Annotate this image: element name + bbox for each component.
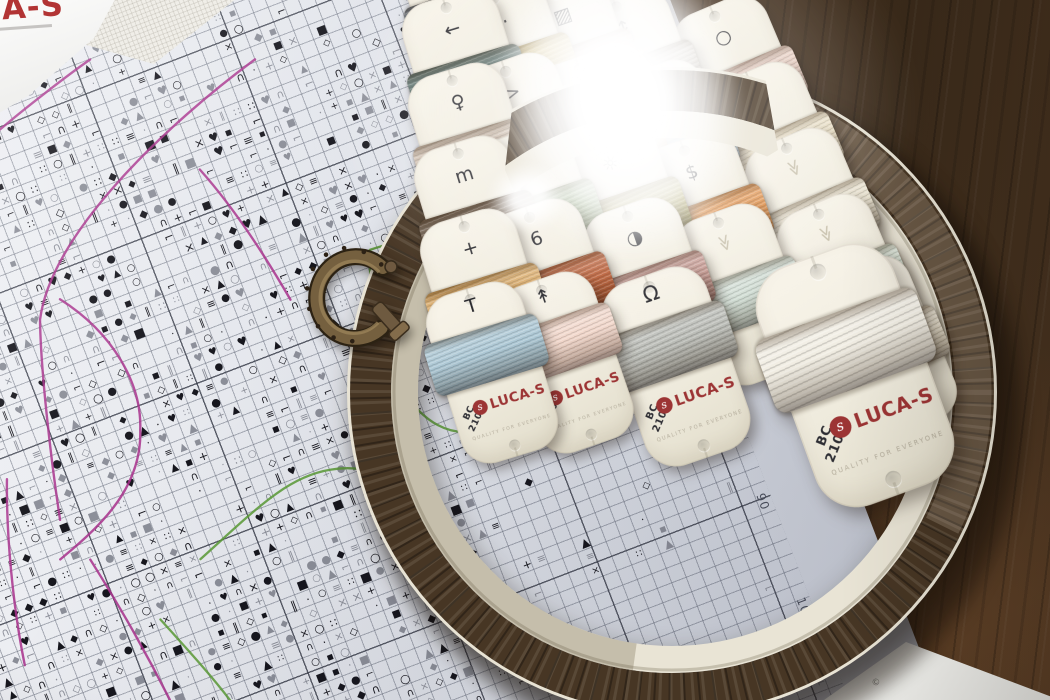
- charm-knob: [384, 260, 398, 274]
- brand-logo-icon: s: [654, 395, 675, 416]
- photo-scene: ▪∩▪○●♥○⌐●·▲∥▪∩∷○▲○∥♥⌐♥∥∷∥+♥⌐○◆⌐▲○♥∷▪▲◇○·…: [0, 0, 1050, 700]
- brand-logo-icon: s: [471, 398, 490, 417]
- metal-charm: [288, 234, 420, 366]
